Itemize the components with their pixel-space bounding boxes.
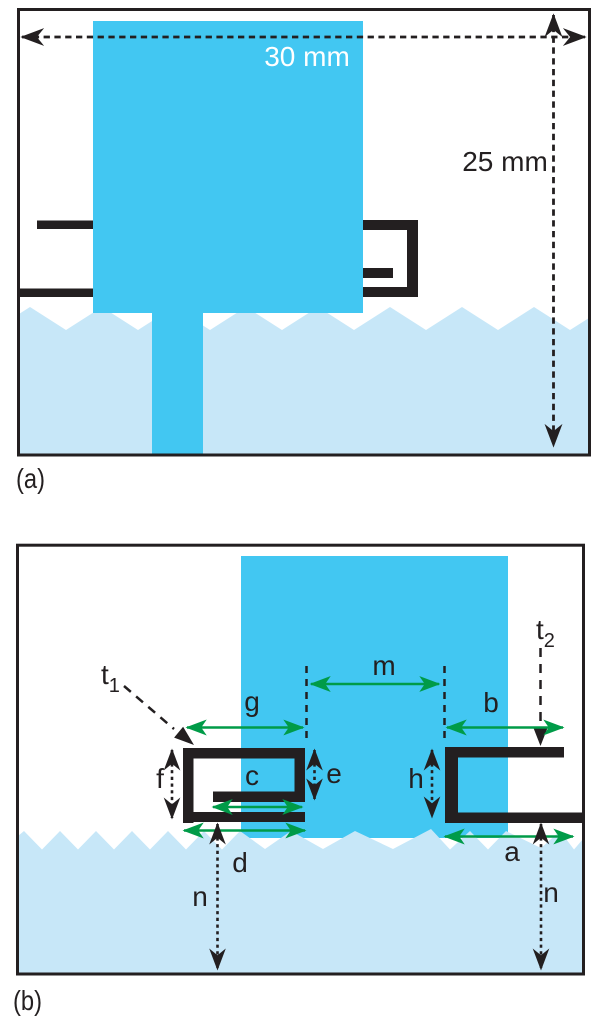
svg-text:f: f <box>156 763 164 794</box>
svg-text:a: a <box>504 836 520 867</box>
svg-text:c: c <box>245 760 259 791</box>
svg-text:e: e <box>326 758 342 789</box>
svg-text:h: h <box>408 763 424 794</box>
svg-text:30 mm: 30 mm <box>264 41 350 72</box>
svg-text:(b): (b) <box>13 985 42 1016</box>
svg-text:m: m <box>372 650 395 681</box>
svg-text:b: b <box>483 687 499 718</box>
svg-text:n: n <box>192 881 208 912</box>
svg-text:d: d <box>232 847 248 878</box>
svg-text:25 mm: 25 mm <box>462 146 548 177</box>
svg-text:n: n <box>543 877 559 908</box>
svg-text:(a): (a) <box>16 463 45 494</box>
svg-text:t1: t1 <box>101 659 120 697</box>
svg-text:g: g <box>244 686 260 717</box>
svg-text:t2: t2 <box>536 614 555 652</box>
